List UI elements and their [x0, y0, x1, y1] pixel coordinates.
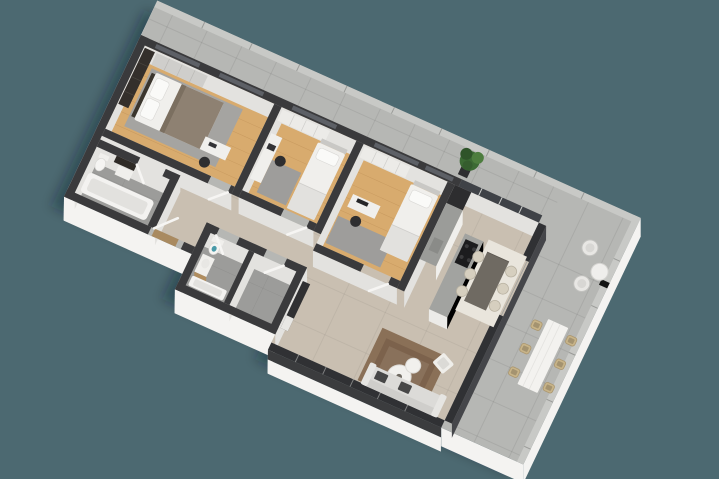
floor-plan-render [0, 0, 719, 479]
